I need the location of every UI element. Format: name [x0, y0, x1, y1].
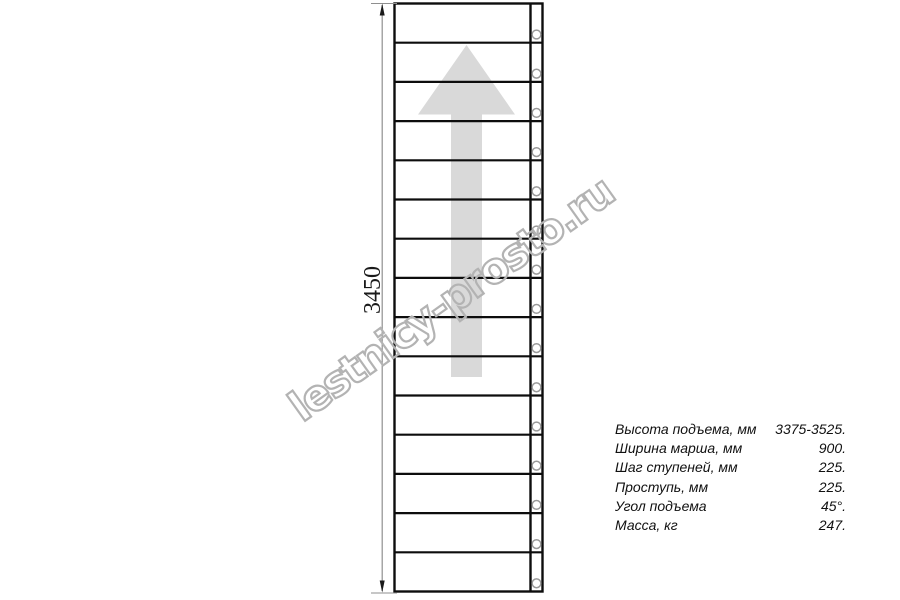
- spec-label: Проступь, мм: [615, 478, 708, 497]
- dimension-arrow-up-icon: [380, 4, 385, 16]
- screw-hole-icon: [532, 30, 541, 39]
- spec-value: 247.: [819, 516, 846, 535]
- spec-row-mass: Масса, кг 247.: [615, 516, 846, 535]
- dimension-group: 3450: [360, 4, 397, 594]
- spec-label: Масса, кг: [615, 516, 678, 535]
- screw-hole-icon: [532, 461, 541, 470]
- screw-hole-icon: [532, 501, 541, 510]
- spec-row-angle: Угол подъема 45°.: [615, 497, 846, 516]
- screw-hole-icon: [532, 540, 541, 549]
- screw-hole-icon: [532, 344, 541, 353]
- screw-hole-icon: [532, 422, 541, 431]
- dimension-arrow-down-icon: [380, 581, 385, 593]
- screw-hole-icon: [532, 226, 541, 235]
- spec-table: Высота подъема, мм 3375-3525. Ширина мар…: [615, 420, 846, 535]
- spec-label: Высота подъема, мм: [615, 420, 757, 439]
- screw-hole-icon: [532, 579, 541, 588]
- spec-value: 900.: [819, 439, 846, 458]
- screw-holes-group: [532, 30, 541, 588]
- screw-hole-icon: [532, 69, 541, 78]
- screw-hole-icon: [532, 305, 541, 314]
- spec-row-height: Высота подъема, мм 3375-3525.: [615, 420, 846, 439]
- spec-value: 3375-3525.: [775, 420, 846, 439]
- spec-value: 45°.: [821, 497, 846, 516]
- direction-up-arrow: [418, 45, 515, 377]
- spec-label: Ширина марша, мм: [615, 439, 742, 458]
- spec-row-march-width: Ширина марша, мм 900.: [615, 439, 846, 458]
- screw-hole-icon: [532, 148, 541, 157]
- spec-row-step-pitch: Шаг ступеней, мм 225.: [615, 458, 846, 477]
- dimension-label: 3450: [360, 266, 386, 314]
- screw-hole-icon: [532, 383, 541, 392]
- spec-label: Шаг ступеней, мм: [615, 458, 738, 477]
- screw-hole-icon: [532, 109, 541, 118]
- screw-hole-icon: [532, 265, 541, 274]
- spec-value: 225.: [819, 458, 846, 477]
- spec-label: Угол подъема: [615, 497, 707, 516]
- spec-row-tread: Проступь, мм 225.: [615, 478, 846, 497]
- screw-hole-icon: [532, 187, 541, 196]
- spec-value: 225.: [819, 478, 846, 497]
